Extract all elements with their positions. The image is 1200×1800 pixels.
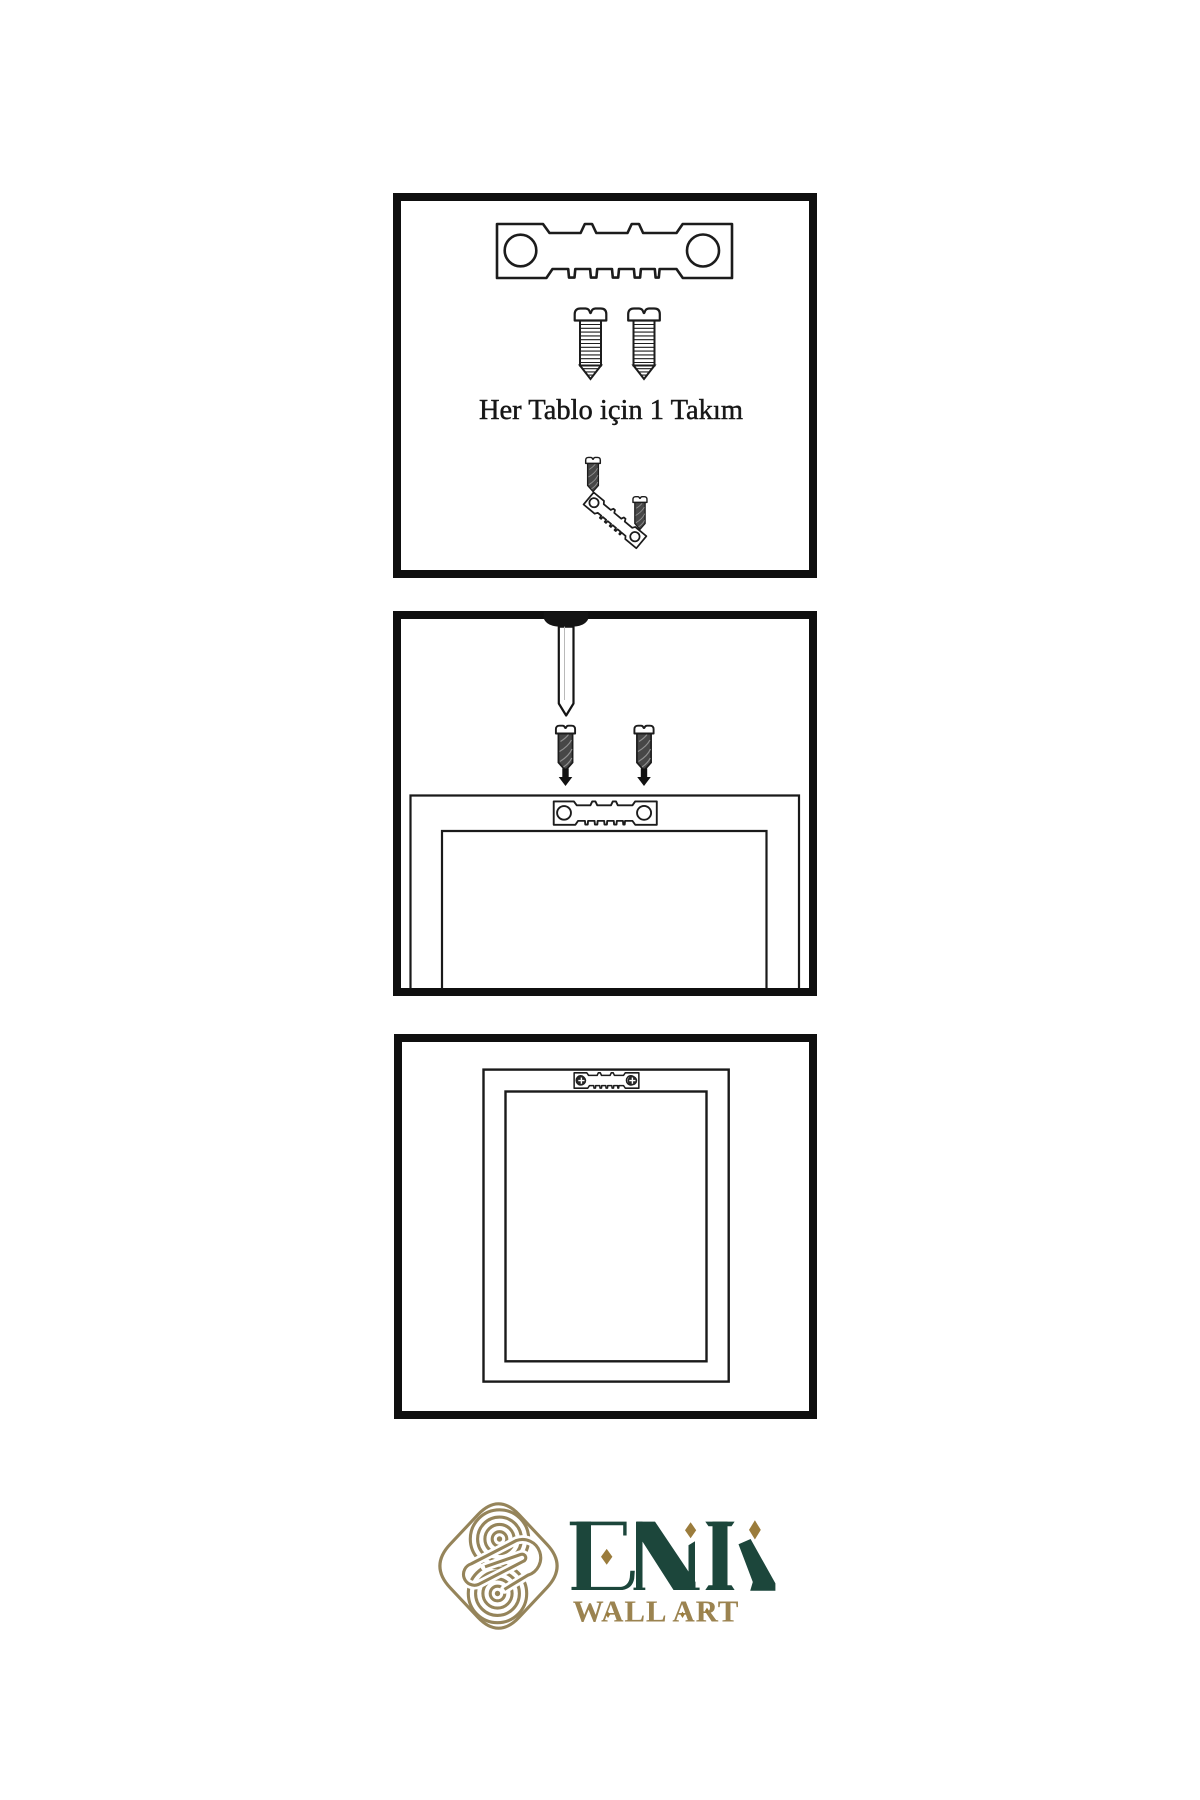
svg-text:WALL ART: WALL ART [573, 1594, 739, 1629]
svg-text:Her Tablo için 1 Takım: Her Tablo için 1 Takım [479, 395, 743, 426]
